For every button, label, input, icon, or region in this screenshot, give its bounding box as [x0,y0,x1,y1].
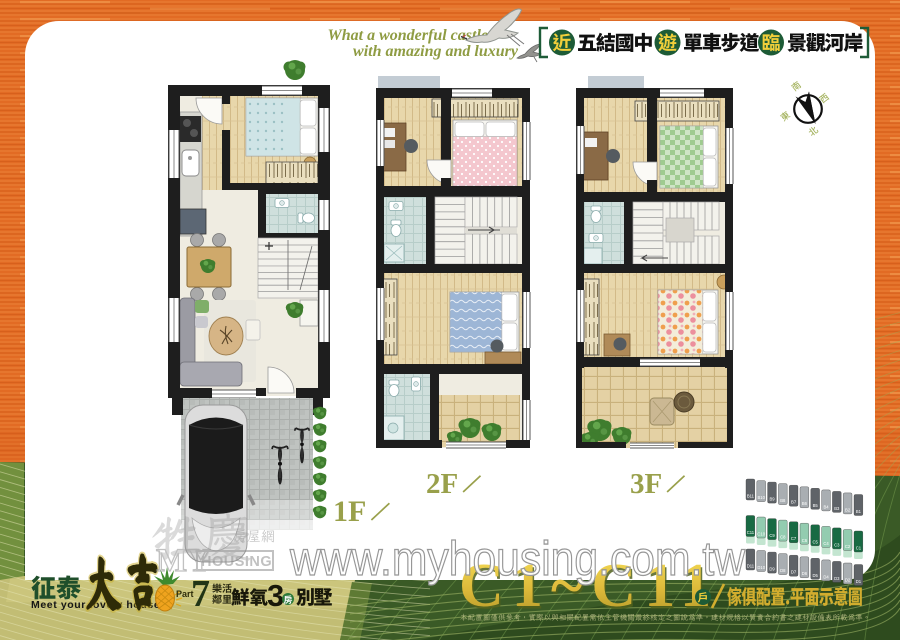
svg-text:B2: B2 [845,507,851,512]
svg-text:B3: B3 [834,506,840,511]
svg-text:C10: C10 [757,532,765,537]
svg-text:HOUSING: HOUSING [201,554,272,570]
svg-text:C2: C2 [845,544,851,549]
svg-text:3F: 3F [630,468,662,500]
svg-text:D9: D9 [769,567,775,572]
svg-text:B10: B10 [757,495,765,500]
svg-text:B1: B1 [856,509,862,514]
svg-text:1F: 1F [333,495,366,528]
svg-text:D4: D4 [823,574,829,579]
svg-text:B6: B6 [802,501,808,506]
svg-text:D1: D1 [856,579,862,584]
svg-text:B7: B7 [791,500,797,505]
svg-text:C11: C11 [747,530,755,535]
svg-text:with amazing and luxury: with amazing and luxury [353,43,519,60]
svg-text:B9: B9 [769,497,775,502]
svg-text:D7: D7 [791,570,797,575]
svg-text:2F: 2F [426,468,458,500]
svg-text:C6: C6 [802,538,808,543]
svg-text:7: 7 [191,573,210,615]
svg-text:C7: C7 [791,536,797,541]
svg-text:D6: D6 [802,571,808,576]
svg-text:D11: D11 [747,564,755,569]
svg-text:3: 3 [267,578,284,613]
svg-text:C9: C9 [769,533,775,538]
svg-text:C4: C4 [823,541,829,546]
svg-text:D5: D5 [813,573,819,578]
svg-text:www.myhousing.com.tw: www.myhousing.com.tw [289,533,745,586]
svg-text:C1: C1 [856,546,862,551]
svg-text:B4: B4 [823,504,829,509]
svg-text:B11: B11 [747,494,755,499]
svg-text:D2: D2 [845,578,851,583]
svg-text:C8: C8 [780,535,786,540]
svg-text:B8: B8 [780,498,786,503]
svg-text:D3: D3 [834,576,840,581]
svg-text:C5: C5 [813,539,819,544]
svg-text:B5: B5 [813,503,819,508]
svg-text:D10: D10 [757,565,765,570]
svg-text:C3: C3 [834,542,840,547]
svg-text:D8: D8 [780,568,786,573]
